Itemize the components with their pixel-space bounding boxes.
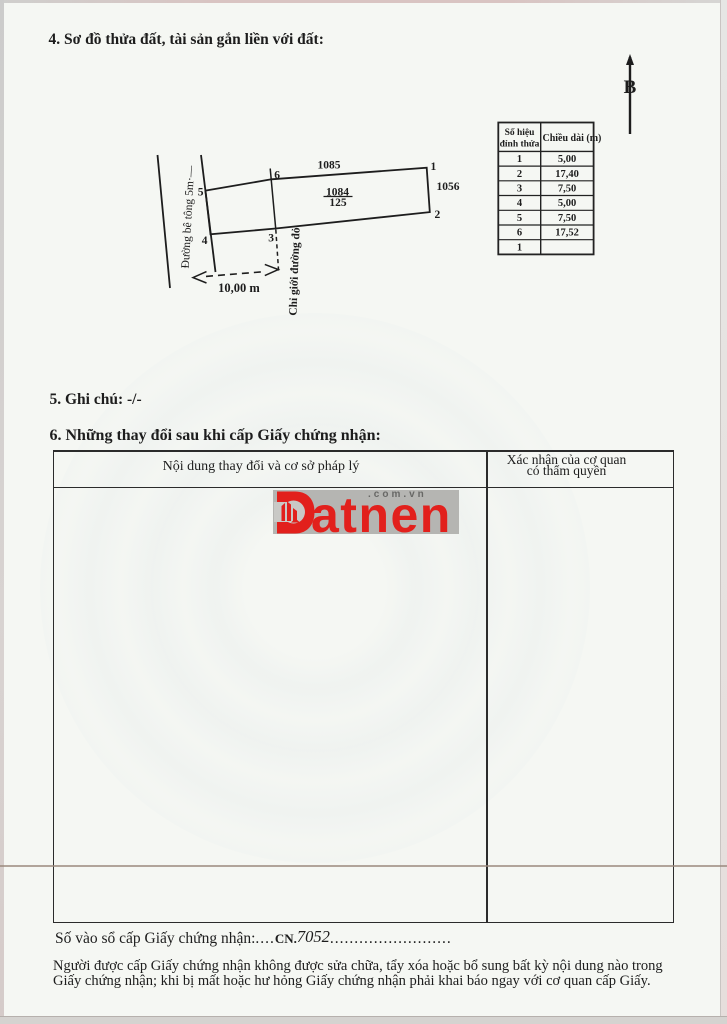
svg-text:7,50: 7,50 [558,184,576,195]
svg-text:17,52: 17,52 [555,228,579,239]
svg-text:1085: 1085 [318,160,341,172]
svg-text:2: 2 [435,209,441,221]
svg-text:1: 1 [431,161,437,173]
svg-text:5,00: 5,00 [558,198,576,209]
svg-text:đỉnh thửa: đỉnh thửa [500,140,540,150]
svg-text:6: 6 [517,228,522,239]
svg-text:6: 6 [274,170,280,182]
svg-text:10,00 m: 10,00 m [218,281,260,295]
svg-text:1: 1 [517,242,522,253]
svg-text:5,00: 5,00 [558,154,576,165]
svg-text:2: 2 [517,169,522,180]
svg-text:Đường bê tông 5m·—: Đường bê tông 5m·— [179,165,197,269]
svg-text:7,50: 7,50 [558,213,576,224]
svg-text:3: 3 [517,184,522,195]
svg-text:5: 5 [198,187,204,199]
svg-text:3: 3 [268,233,274,245]
svg-text:1056: 1056 [437,181,460,193]
svg-text:125: 125 [329,197,347,209]
svg-text:Chỉ giới đường đỏ: Chỉ giới đường đỏ [287,227,302,316]
svg-text:B: B [624,77,637,98]
svg-text:4: 4 [202,235,208,247]
svg-text:17,40: 17,40 [555,169,579,180]
svg-text:Chiều dài (m): Chiều dài (m) [543,133,602,144]
svg-text:5: 5 [517,213,522,224]
svg-text:1: 1 [517,154,522,165]
svg-text:4: 4 [517,198,523,209]
svg-text:Số hiệu: Số hiệu [505,127,536,138]
